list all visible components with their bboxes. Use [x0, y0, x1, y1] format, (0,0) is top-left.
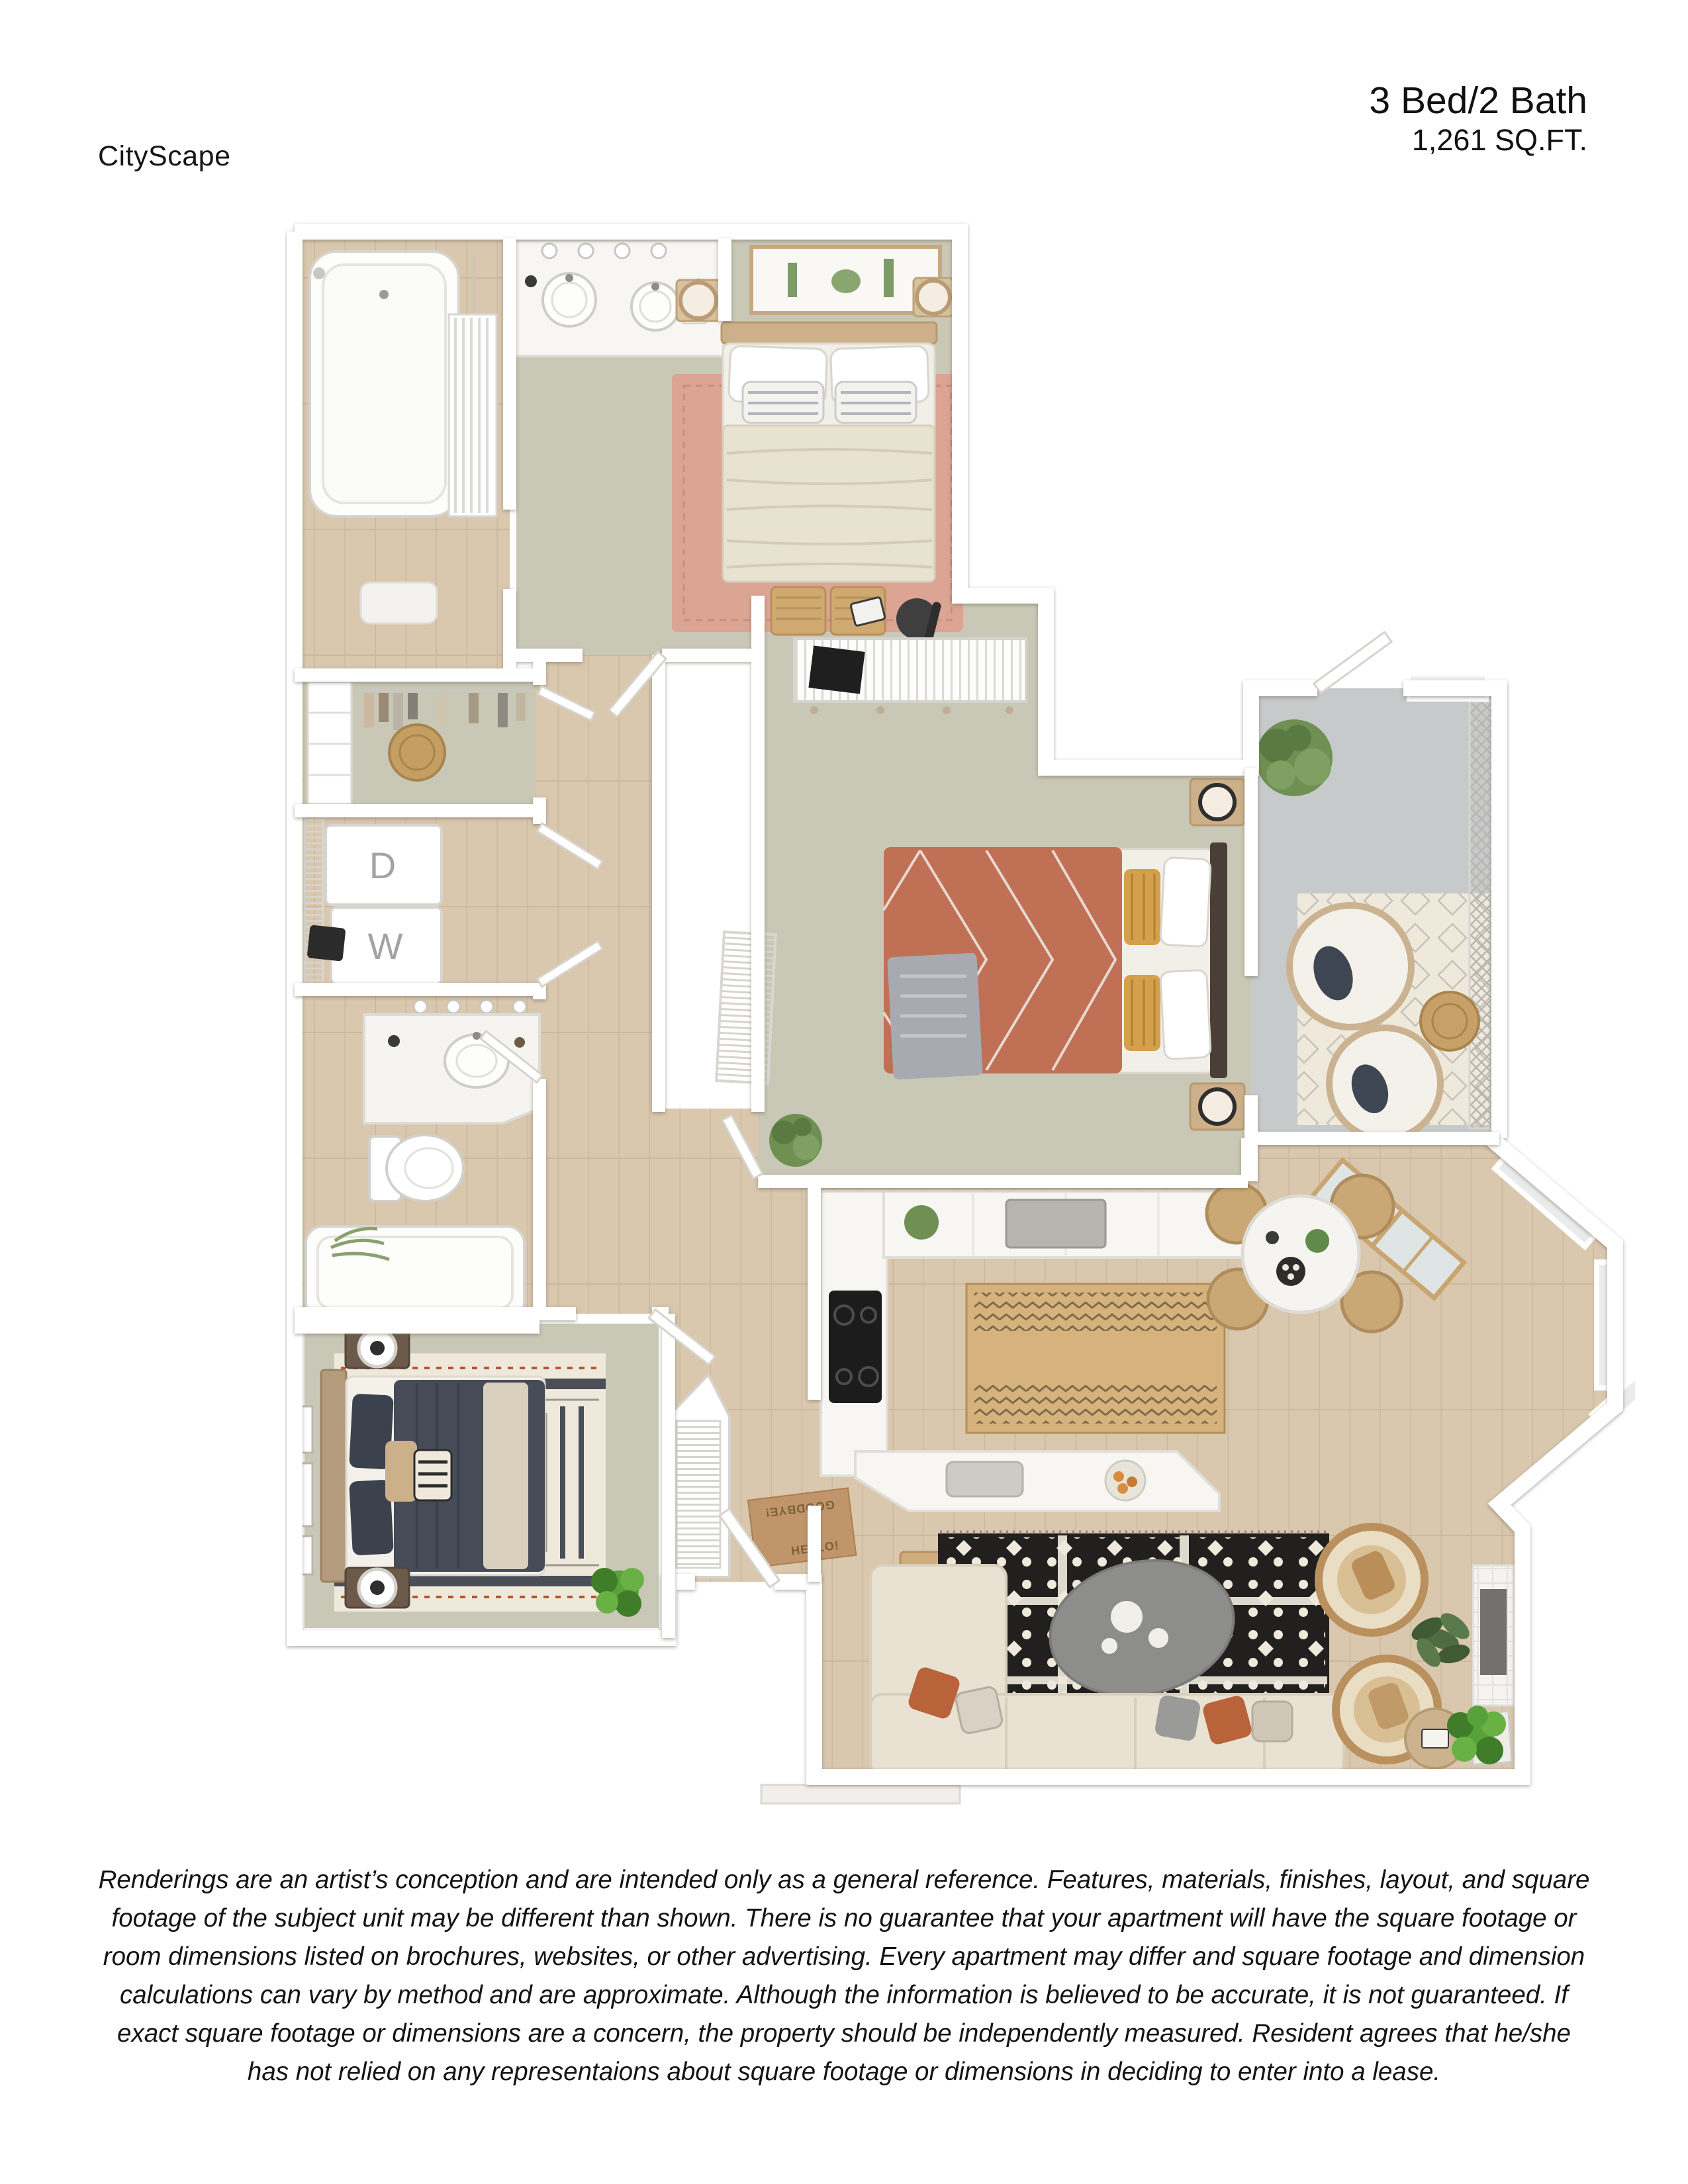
appliance: [1006, 1200, 1105, 1248]
patio-plant: [1256, 719, 1333, 796]
folded-blanket: [483, 1383, 528, 1569]
potted-plant: [591, 1568, 644, 1617]
disclaimer-line: footage of the subject unit may be diffe…: [73, 1899, 1615, 1938]
counter-plant: [904, 1205, 939, 1240]
kitchen-runner-rug: [966, 1284, 1225, 1433]
master-bed: [722, 322, 937, 582]
front-step: [761, 1785, 960, 1803]
lamp: [1200, 785, 1235, 819]
doormat: GOODBYE! HELLO!: [748, 1488, 856, 1567]
disclaimer-line: room dimensions listed on brochures, web…: [73, 1938, 1615, 1976]
headboard: [722, 322, 937, 343]
unit-type: 3 Bed/2 Bath: [1369, 79, 1587, 122]
dish: [1149, 1628, 1168, 1648]
bedroom-3: [301, 1328, 644, 1617]
floor-plant: [1447, 1706, 1506, 1764]
lounge-chair: [1329, 1028, 1440, 1139]
magazine: [1422, 1729, 1448, 1748]
pillow: [1160, 857, 1211, 946]
property-name: CityScape: [98, 140, 230, 173]
pillow: [955, 1686, 1004, 1735]
louvered-door: [716, 932, 776, 1083]
tv: [808, 645, 865, 694]
detergent: [307, 925, 346, 961]
door-leaf-patio: [1314, 632, 1391, 693]
unit-square-footage: 1,261 SQ.FT.: [1412, 122, 1587, 159]
lumbar-pillow: [385, 1441, 417, 1502]
flyer-page: CityScape 3 Bed/2 Bath 1,261 SQ.FT.: [0, 0, 1688, 2184]
patio-side-table: [1421, 992, 1479, 1050]
washer-label: W: [368, 925, 403, 967]
railing: [1470, 702, 1492, 1128]
nightstand-left: [677, 280, 720, 321]
disclaimer-line: has not relied on any representaions abo…: [73, 2053, 1615, 2091]
headboard: [321, 1370, 346, 1582]
floor-plan: D W: [285, 215, 1635, 1810]
tub-drain: [379, 290, 389, 299]
lamp: [680, 283, 716, 318]
counter-bottom: [855, 1451, 1219, 1511]
lamp: [1200, 1089, 1235, 1124]
nightstand-bottom: [1190, 1083, 1244, 1130]
bath-mat: [361, 582, 437, 623]
louver-panel: [305, 814, 323, 985]
dresser-nook: [794, 639, 1026, 714]
pillow: [1160, 970, 1211, 1059]
headboard: [1210, 842, 1227, 1078]
dryer-label: D: [369, 844, 396, 886]
bed-3: [321, 1370, 545, 1582]
woven-basket: [389, 725, 445, 780]
dish: [1111, 1601, 1143, 1633]
unit-header: 3 Bed/2 Bath 1,261 SQ.FT.: [1369, 79, 1587, 159]
entry-closet: [669, 1375, 729, 1577]
bed-2: [884, 842, 1227, 1079]
dining-table: [1243, 1196, 1359, 1312]
fruit-bowl: [1105, 1461, 1145, 1500]
dish: [1102, 1638, 1117, 1654]
toilet: [369, 1135, 463, 1201]
hallway: [716, 932, 776, 1083]
shower-curtain: [449, 314, 496, 516]
nightstand-top: [346, 1328, 409, 1368]
nightstand-top: [1190, 779, 1244, 825]
lamp: [917, 281, 950, 314]
laundry-closet: D W: [305, 814, 442, 985]
nightstand-bottom: [346, 1568, 409, 1608]
disclaimer: Renderings are an artist’s conception an…: [73, 1861, 1615, 2091]
pillow: [1252, 1702, 1292, 1741]
lounge-chair: [1289, 905, 1411, 1027]
disclaimer-line: Renderings are an artist’s conception an…: [73, 1861, 1615, 1899]
disclaimer-line: calculations can vary by method and are …: [73, 1976, 1615, 2015]
shower-head: [313, 267, 325, 279]
pillow: [1154, 1694, 1201, 1742]
kitchen-sink: [947, 1462, 1023, 1496]
cooktop: [829, 1291, 882, 1403]
master-bedroom: [672, 247, 963, 643]
potted-plant: [769, 1114, 822, 1167]
disclaimer-line: exact square footage or dimensions are a…: [73, 2015, 1615, 2053]
louvered-door: [677, 1421, 720, 1568]
rattan-chair: [1319, 1527, 1425, 1633]
nightstand-right: [914, 278, 953, 316]
